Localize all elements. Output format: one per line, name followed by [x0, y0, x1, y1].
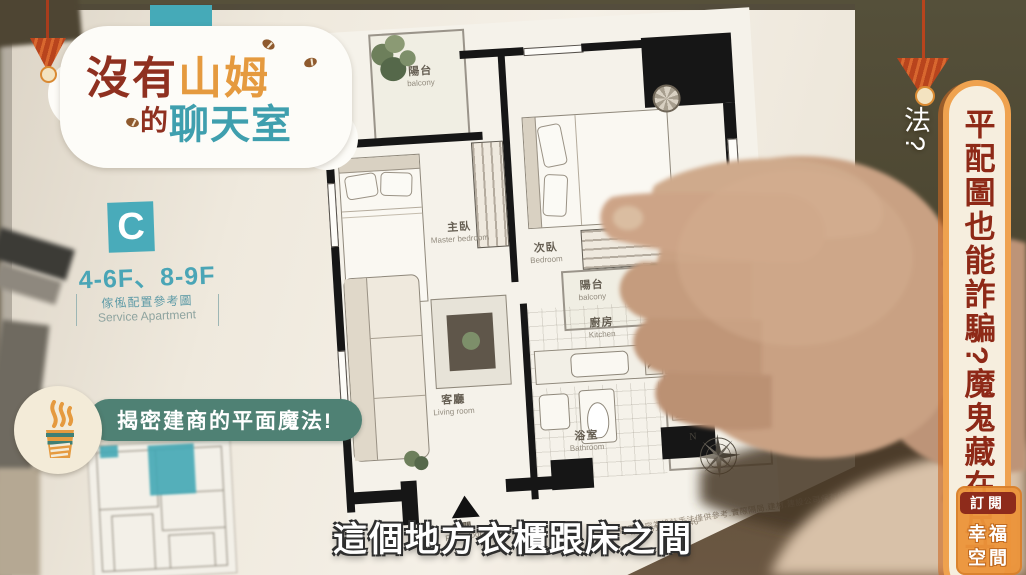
coffee-cup-icon — [32, 400, 84, 460]
channel-name-bottom: 空間 — [956, 544, 1022, 570]
divider — [76, 294, 77, 326]
badge-circle — [14, 386, 102, 474]
divider — [218, 294, 219, 326]
channel-name-top: 幸福 — [956, 520, 1022, 546]
subscribe-button-label[interactable]: 訂閱 — [960, 492, 1016, 514]
subscribe-badge[interactable]: 訂閱 幸福 空間 — [956, 486, 1022, 575]
video-frame: 陽台 balcony 主臥 Master bedroom — [0, 0, 1026, 575]
pendant-lamp-icon — [915, 86, 935, 106]
pendant-lamp-icon — [922, 0, 925, 62]
logo-line2: 的聊天室 — [140, 92, 360, 150]
pendant-lamp-icon — [40, 66, 57, 83]
pendant-lamp-icon — [46, 0, 49, 40]
topic-badge: 揭密建商的平面魔法! — [88, 399, 362, 441]
fingernail — [613, 206, 643, 230]
unit-letter-badge: C — [107, 201, 155, 253]
video-subtitle: 這個地方衣櫃跟床之間 — [0, 512, 1026, 561]
